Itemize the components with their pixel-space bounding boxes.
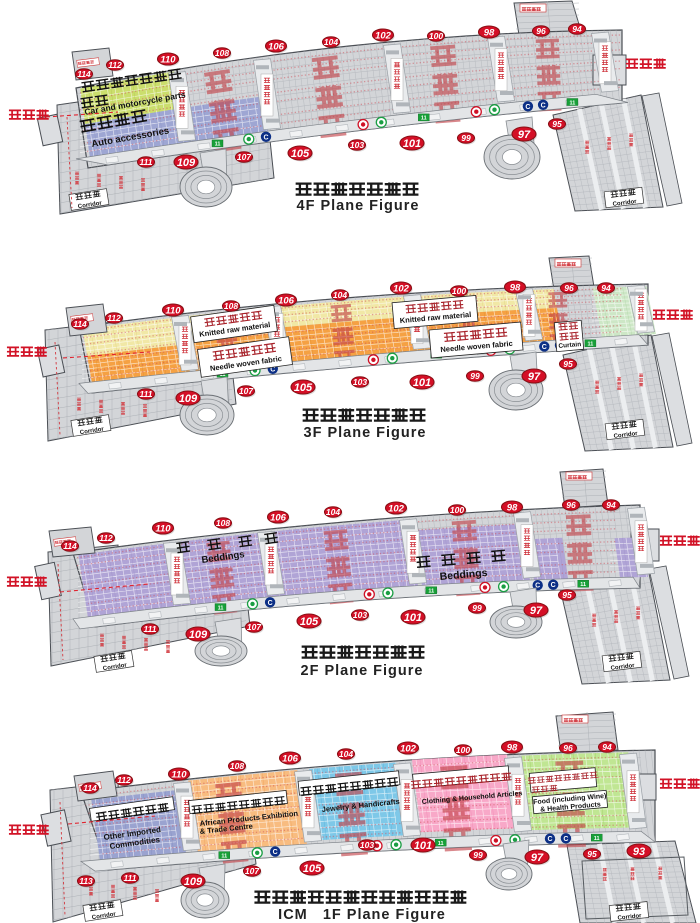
svg-text:110: 110 bbox=[160, 54, 176, 65]
svg-text:2F Plane Figure: 2F Plane Figure bbox=[301, 663, 424, 679]
svg-text:94: 94 bbox=[602, 742, 612, 752]
svg-text:C: C bbox=[525, 104, 530, 111]
svg-text:104: 104 bbox=[324, 37, 338, 47]
svg-text:96: 96 bbox=[536, 26, 546, 36]
svg-text:ICM 1F Plane Figure: ICM 1F Plane Figure bbox=[278, 907, 446, 923]
svg-text:C: C bbox=[551, 582, 556, 589]
svg-text:11: 11 bbox=[218, 605, 224, 611]
svg-text:11: 11 bbox=[587, 342, 593, 348]
svg-text:97: 97 bbox=[530, 605, 543, 617]
svg-text:114: 114 bbox=[83, 783, 97, 793]
svg-text:94: 94 bbox=[606, 500, 616, 510]
svg-text:95: 95 bbox=[552, 119, 562, 129]
svg-text:111: 111 bbox=[140, 157, 153, 167]
svg-text:101: 101 bbox=[403, 138, 421, 150]
svg-text:11: 11 bbox=[421, 116, 427, 122]
svg-text:95: 95 bbox=[562, 590, 572, 600]
svg-text:109: 109 bbox=[189, 629, 208, 641]
svg-text:11: 11 bbox=[438, 841, 444, 847]
svg-text:111: 111 bbox=[124, 873, 137, 883]
svg-text:114: 114 bbox=[63, 541, 77, 551]
svg-text:102: 102 bbox=[388, 503, 405, 514]
svg-text:99: 99 bbox=[473, 850, 483, 860]
svg-text:100: 100 bbox=[450, 505, 464, 515]
svg-text:100: 100 bbox=[429, 31, 443, 41]
svg-text:C: C bbox=[542, 344, 547, 351]
svg-text:101: 101 bbox=[413, 377, 431, 389]
svg-text:11: 11 bbox=[215, 142, 221, 148]
svg-text:104: 104 bbox=[326, 507, 340, 517]
svg-text:98: 98 bbox=[507, 502, 518, 513]
svg-text:102: 102 bbox=[400, 743, 417, 754]
svg-text:107: 107 bbox=[245, 866, 260, 876]
svg-text:114: 114 bbox=[77, 69, 91, 79]
svg-text:106: 106 bbox=[278, 295, 295, 306]
svg-text:98: 98 bbox=[510, 282, 521, 293]
svg-text:96: 96 bbox=[564, 283, 574, 293]
svg-text:110: 110 bbox=[155, 523, 171, 534]
svg-text:11: 11 bbox=[428, 589, 434, 595]
svg-text:94: 94 bbox=[572, 24, 582, 34]
svg-text:11: 11 bbox=[580, 582, 586, 588]
svg-text:106: 106 bbox=[282, 753, 299, 764]
svg-text:104: 104 bbox=[333, 290, 347, 300]
svg-text:101: 101 bbox=[404, 612, 422, 624]
svg-text:105: 105 bbox=[303, 863, 322, 875]
svg-text:112: 112 bbox=[99, 533, 113, 543]
svg-text:96: 96 bbox=[566, 500, 576, 510]
svg-text:107: 107 bbox=[237, 152, 252, 162]
svg-text:104: 104 bbox=[339, 749, 353, 759]
svg-text:107: 107 bbox=[247, 622, 262, 632]
svg-text:98: 98 bbox=[484, 27, 495, 38]
svg-text:C: C bbox=[541, 102, 546, 109]
svg-text:108: 108 bbox=[216, 518, 230, 528]
svg-text:105: 105 bbox=[300, 616, 319, 628]
svg-text:107: 107 bbox=[239, 386, 254, 396]
svg-text:11: 11 bbox=[569, 100, 575, 106]
svg-text:110: 110 bbox=[171, 769, 187, 780]
svg-text:95: 95 bbox=[587, 849, 597, 859]
svg-text:111: 111 bbox=[144, 624, 157, 634]
svg-text:4F Plane Figure: 4F Plane Figure bbox=[297, 198, 420, 214]
svg-text:C: C bbox=[263, 134, 268, 141]
svg-text:103: 103 bbox=[360, 840, 374, 850]
svg-text:94: 94 bbox=[601, 283, 611, 293]
svg-text:106: 106 bbox=[270, 512, 287, 523]
svg-text:11: 11 bbox=[594, 836, 600, 842]
svg-text:100: 100 bbox=[452, 286, 466, 296]
svg-text:93: 93 bbox=[633, 846, 645, 858]
svg-text:109: 109 bbox=[184, 876, 203, 888]
svg-text:112: 112 bbox=[117, 775, 131, 785]
svg-text:96: 96 bbox=[563, 743, 573, 753]
svg-text:97: 97 bbox=[531, 852, 544, 864]
svg-text:106: 106 bbox=[268, 41, 285, 52]
svg-text:113: 113 bbox=[79, 876, 93, 886]
svg-text:100: 100 bbox=[456, 745, 470, 755]
svg-text:110: 110 bbox=[165, 305, 181, 316]
svg-text:97: 97 bbox=[528, 371, 541, 383]
svg-text:112: 112 bbox=[107, 313, 121, 323]
svg-text:103: 103 bbox=[350, 140, 364, 150]
svg-text:C: C bbox=[268, 600, 273, 607]
svg-text:98: 98 bbox=[507, 742, 518, 753]
svg-text:101: 101 bbox=[414, 840, 432, 852]
svg-text:C: C bbox=[547, 836, 552, 843]
svg-text:114: 114 bbox=[73, 319, 87, 329]
svg-text:99: 99 bbox=[461, 133, 471, 143]
svg-text:108: 108 bbox=[215, 48, 229, 58]
svg-text:112: 112 bbox=[108, 60, 122, 70]
svg-text:99: 99 bbox=[472, 603, 482, 613]
svg-text:105: 105 bbox=[291, 148, 310, 160]
svg-text:C: C bbox=[563, 836, 568, 843]
svg-text:111: 111 bbox=[140, 389, 153, 399]
svg-text:C: C bbox=[273, 849, 278, 856]
svg-text:105: 105 bbox=[294, 382, 313, 394]
svg-text:103: 103 bbox=[353, 610, 367, 620]
svg-text:97: 97 bbox=[518, 129, 531, 141]
svg-text:99: 99 bbox=[470, 371, 480, 381]
svg-text:103: 103 bbox=[353, 377, 367, 387]
svg-text:109: 109 bbox=[177, 157, 196, 169]
svg-text:109: 109 bbox=[179, 393, 198, 405]
svg-text:108: 108 bbox=[224, 301, 238, 311]
svg-text:3F Plane Figure: 3F Plane Figure bbox=[304, 425, 427, 441]
svg-text:95: 95 bbox=[563, 359, 573, 369]
svg-text:108: 108 bbox=[230, 761, 244, 771]
svg-text:11: 11 bbox=[221, 853, 227, 859]
svg-text:102: 102 bbox=[393, 283, 410, 294]
svg-text:102: 102 bbox=[375, 30, 392, 41]
